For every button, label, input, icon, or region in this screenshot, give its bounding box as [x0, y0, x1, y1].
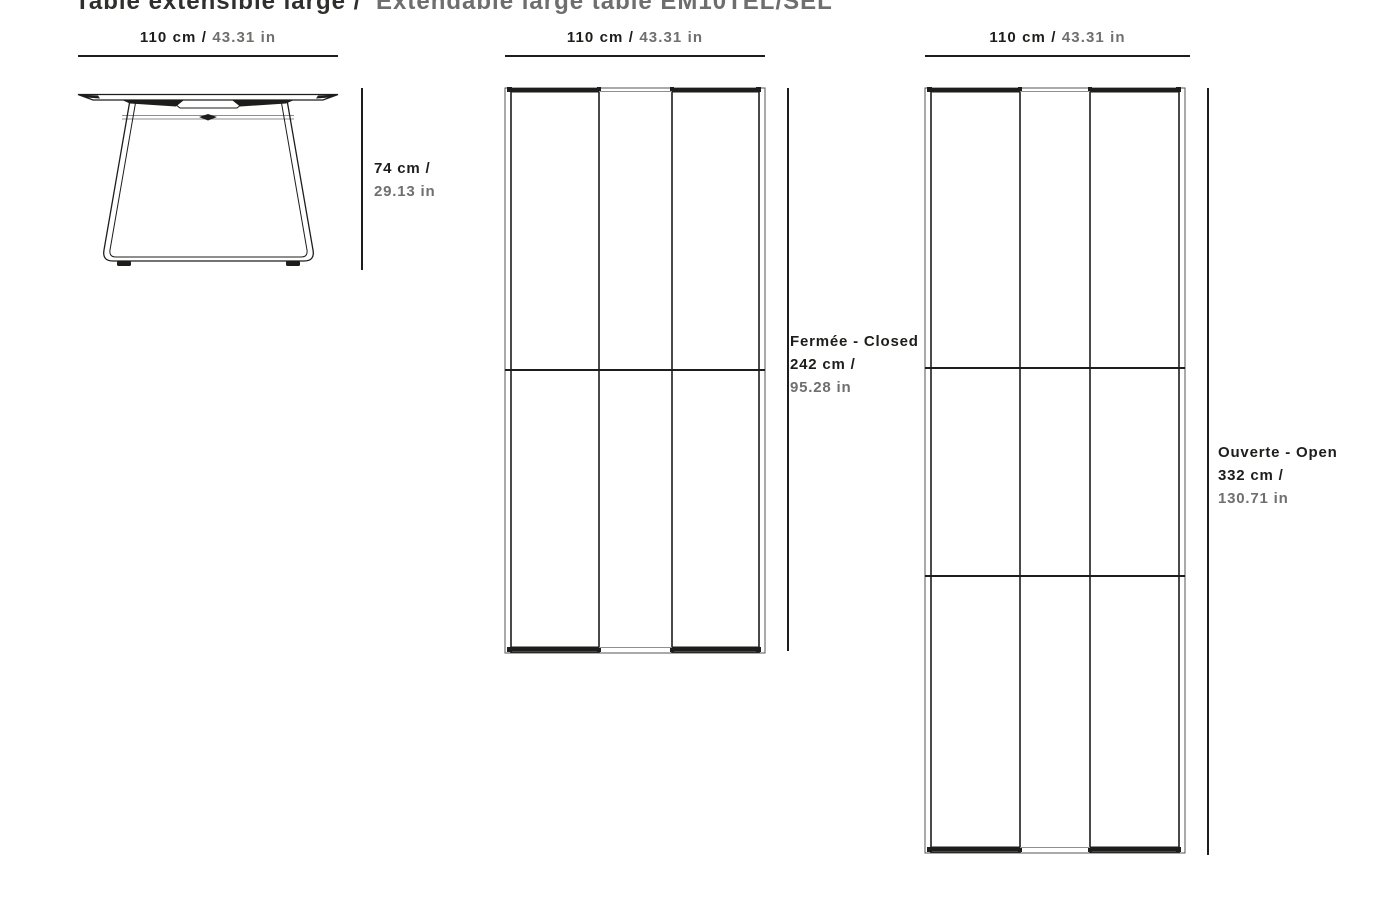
height-in: 29.13 in — [374, 181, 435, 204]
open-state-label: Ouverte - Open — [1218, 441, 1338, 464]
height-dimension-label: 74 cm / 29.13 in — [374, 158, 435, 204]
width-in-side: 43.31 in — [212, 29, 276, 46]
width-dimension-line-closed — [505, 55, 765, 57]
stretcher-rail — [122, 114, 294, 121]
width-cm-closed: 110 cm / — [567, 29, 634, 46]
foot-left — [117, 261, 131, 266]
foot-right — [286, 261, 300, 266]
tabletop — [78, 95, 338, 109]
side-view-drawing — [64, 86, 364, 281]
width-dimension-label-closed: 110 cm / 43.31 in — [505, 29, 765, 49]
width-dimension-label-open: 110 cm / 43.31 in — [925, 29, 1190, 49]
closed-length-in: 95.28 in — [790, 376, 919, 399]
open-top-view-drawing — [918, 86, 1218, 861]
height-dimension-line — [361, 88, 363, 270]
width-cm-side: 110 cm / — [140, 29, 207, 46]
rail-center-clip — [199, 114, 217, 121]
title-french: Table extensible large / — [75, 0, 361, 15]
slide-mechanism-right — [232, 100, 294, 107]
closed-state-label: Fermée - Closed — [790, 330, 919, 353]
closed-length-dimension-line — [787, 88, 789, 651]
width-cm-open: 110 cm / — [989, 29, 1056, 46]
page-title: Table extensible large / Extendable larg… — [75, 0, 833, 16]
closed-top-view-drawing — [498, 86, 798, 661]
open-length-dimension-line — [1207, 88, 1209, 855]
width-dimension-line-side — [78, 55, 338, 57]
spec-sheet: Table extensible large / Extendable larg… — [0, 0, 1376, 908]
width-in-open: 43.31 in — [1062, 29, 1126, 46]
width-in-closed: 43.31 in — [639, 29, 703, 46]
width-dimension-label-side: 110 cm / 43.31 in — [78, 29, 338, 49]
width-dimension-line-open — [925, 55, 1190, 57]
table-base — [104, 100, 314, 266]
height-cm: 74 cm / — [374, 158, 435, 181]
frame-outline — [925, 88, 1185, 853]
open-length-dimension-label: Ouverte - Open 332 cm / 130.71 in — [1218, 441, 1338, 510]
closed-length-dimension-label: Fermée - Closed 242 cm / 95.28 in — [790, 330, 919, 399]
closed-length-cm: 242 cm / — [790, 353, 919, 376]
title-english: Extendable large table EM10TEL/SEL — [376, 0, 833, 15]
open-length-cm: 332 cm / — [1218, 464, 1338, 487]
open-length-in: 130.71 in — [1218, 487, 1338, 510]
